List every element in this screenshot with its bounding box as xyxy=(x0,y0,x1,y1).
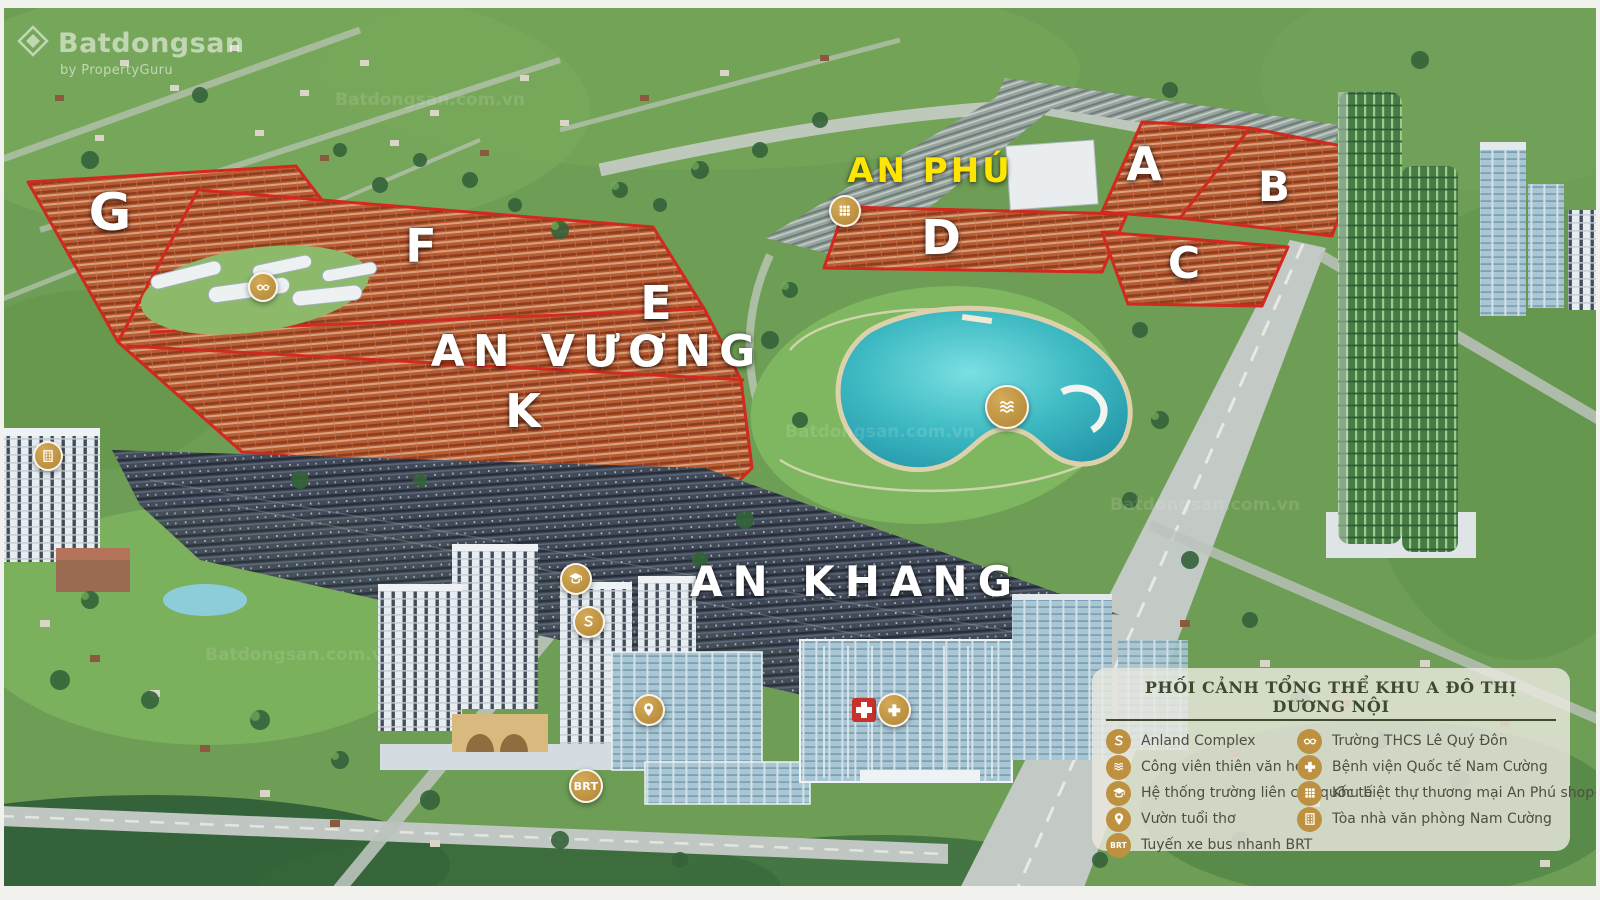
an-phu-shop-villa-marker xyxy=(829,195,861,227)
zone-label-K: K xyxy=(505,388,541,434)
brt-icon: BRT xyxy=(1106,833,1131,858)
medical-cross-icon xyxy=(1297,755,1322,780)
frame-bottom xyxy=(0,886,1600,900)
legend-item-international-school: Hệ thống trường liên cấp quốc tế xyxy=(1106,780,1297,806)
office-building-icon xyxy=(1297,807,1322,832)
hospital-marker xyxy=(877,693,911,727)
watermark-tile: Batdongsan.com.vn xyxy=(1110,495,1300,515)
legend-item-le-quy-don: Trường THCS Lê Quý Đôn xyxy=(1297,728,1600,754)
le-quy-don-school-marker xyxy=(248,272,278,302)
frame-left xyxy=(0,0,4,900)
watermark: Batdongsan by PropertyGuru xyxy=(16,24,245,78)
nam-cuong-office-marker xyxy=(33,441,63,471)
legend-item-hospital: Bệnh viện Quốc tế Nam Cường xyxy=(1297,754,1600,780)
legend-item-label: Tuyến xe bus nhanh BRT xyxy=(1141,837,1312,853)
frame-top xyxy=(0,0,1600,8)
legend-item-label: Bệnh viện Quốc tế Nam Cường xyxy=(1332,759,1548,775)
legend-title: PHỐI CẢNH TỔNG THỂ KHU A ĐÔ THỊ DƯƠNG NỘ… xyxy=(1106,678,1556,721)
zone-label-D: D xyxy=(921,214,961,262)
legend-item-label: Tòa nhà văn phòng Nam Cường xyxy=(1332,811,1552,827)
zone-label-G: G xyxy=(89,187,132,239)
zone-label-B: B xyxy=(1258,166,1290,208)
anland-complex-marker xyxy=(573,606,605,638)
watermark-byline: by PropertyGuru xyxy=(60,63,245,78)
legend-item-label: Công viên thiên văn học xyxy=(1141,759,1311,775)
area-label-an-vương: AN VƯƠNG xyxy=(431,330,763,374)
watermark-tile: Batdongsan.com.vn xyxy=(785,422,975,442)
glasses-icon xyxy=(1297,729,1322,754)
zone-label-A: A xyxy=(1126,141,1162,187)
legend-item-label: Vườn tuổi thơ xyxy=(1141,811,1236,827)
legend-item-label: Anland Complex xyxy=(1141,733,1256,749)
child-pin-icon xyxy=(1106,807,1131,832)
waves-icon xyxy=(1106,755,1131,780)
legend-item-office-tower: Tòa nhà văn phòng Nam Cường xyxy=(1297,806,1600,832)
children-garden-marker xyxy=(633,694,665,726)
legend-item-children-garden: Vườn tuổi thơ xyxy=(1106,806,1297,832)
zone-label-F: F xyxy=(405,223,436,269)
area-label-an-khang: AN KHANG xyxy=(690,561,1022,603)
legend-panel: PHỐI CẢNH TỔNG THỂ KHU A ĐÔ THỊ DƯƠNG NỘ… xyxy=(1092,668,1570,851)
watermark-brand: Batdongsan xyxy=(58,28,245,59)
legend-item-shop-villa: Khu biệt thự thương mại An Phú shop-vill… xyxy=(1297,780,1600,806)
batdongsan-logo-icon xyxy=(16,24,50,62)
legend-item-brt: BRT Tuyến xe bus nhanh BRT xyxy=(1106,832,1297,858)
graduation-cap-icon xyxy=(1106,781,1131,806)
legend-item-astronomy-park: Công viên thiên văn học xyxy=(1106,754,1297,780)
zone-label-C: C xyxy=(1168,242,1200,286)
masterplan-screenshot: GFEKDABCAN PHÚAN VƯƠNGAN KHANGBRTBatdong… xyxy=(0,0,1600,900)
zone-label-E: E xyxy=(640,280,671,326)
legend-item-label: Khu biệt thự thương mại An Phú shop-vill… xyxy=(1332,785,1600,801)
legend-item-anland: Anland Complex xyxy=(1106,728,1297,754)
astronomy-park-lake-marker xyxy=(985,385,1029,429)
frame-right xyxy=(1596,0,1600,900)
legend-item-label: Trường THCS Lê Quý Đôn xyxy=(1332,733,1508,749)
watermark-tile: Batdongsan.com.vn xyxy=(205,645,395,665)
shop-villa-icon xyxy=(1297,781,1322,806)
brt-marker: BRT xyxy=(569,769,603,803)
area-label-an-phú: AN PHÚ xyxy=(847,154,1013,188)
international-school-marker xyxy=(560,563,592,595)
watermark-tile: Batdongsan.com.vn xyxy=(335,90,525,110)
anland-logo-icon xyxy=(1106,729,1131,754)
